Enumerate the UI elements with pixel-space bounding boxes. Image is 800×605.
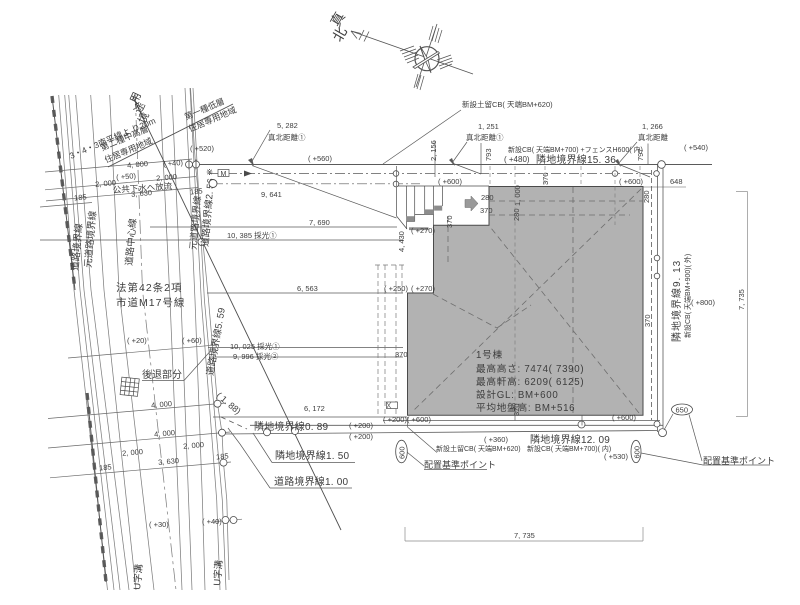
svg-text:( +40): ( +40) <box>163 158 184 169</box>
svg-text:2, 000: 2, 000 <box>122 447 144 458</box>
svg-text:隣地境界線0. 89: 隣地境界線0. 89 <box>254 420 328 433</box>
svg-text:道路境界線1. 00: 道路境界線1. 00 <box>274 475 348 488</box>
svg-text:( +560): ( +560) <box>308 154 332 163</box>
svg-text:( +480): ( +480) <box>504 155 530 164</box>
svg-text:9, 996 採光②: 9, 996 採光② <box>233 351 279 361</box>
svg-text:2, 156: 2, 156 <box>429 140 438 161</box>
svg-text:真北距離①: 真北距離① <box>268 132 306 142</box>
svg-text:280: 280 <box>512 208 521 221</box>
svg-text:( +200): ( +200) <box>349 421 373 430</box>
svg-text:法第42条2項: 法第42条2項 <box>116 281 183 294</box>
svg-text:( +600): ( +600) <box>438 177 462 186</box>
svg-text:( +250): ( +250) <box>384 284 408 293</box>
svg-text:280: 280 <box>642 190 651 203</box>
svg-text:新設土留CB( 天端BM+620): 新設土留CB( 天端BM+620) <box>436 444 521 453</box>
svg-text:平均地盤高: BM+516: 平均地盤高: BM+516 <box>476 401 575 414</box>
svg-text:後退部分: 後退部分 <box>142 368 182 381</box>
svg-text:( +270): ( +270) <box>411 226 435 235</box>
svg-text:( +200): ( +200) <box>349 432 373 441</box>
svg-text:U字溝: U字溝 <box>211 559 225 586</box>
svg-text:1号棟: 1号棟 <box>476 348 503 361</box>
svg-text:隣地境界線12. 09: 隣地境界線12. 09 <box>530 433 610 446</box>
svg-text:U字溝: U字溝 <box>131 563 145 590</box>
svg-text:185: 185 <box>74 192 87 202</box>
svg-text:1, 251: 1, 251 <box>478 122 499 131</box>
svg-text:600: 600 <box>633 446 642 459</box>
svg-text:( +520): ( +520) <box>190 144 214 153</box>
svg-text:最高高さ: 7474( 7390): 最高高さ: 7474( 7390) <box>476 362 584 375</box>
svg-text:( +600): ( +600) <box>612 413 636 422</box>
svg-text:185: 185 <box>99 462 112 472</box>
svg-text:370: 370 <box>395 350 408 359</box>
svg-text:市道M17号線: 市道M17号線 <box>116 296 185 309</box>
svg-text:7, 735: 7, 735 <box>737 289 746 310</box>
svg-text:7, 735: 7, 735 <box>514 531 535 540</box>
svg-text:隣地境界線15. 36: 隣地境界線15. 36 <box>536 153 616 166</box>
svg-text:配置基準ポイント: 配置基準ポイント <box>703 455 775 466</box>
svg-text:370: 370 <box>541 172 550 185</box>
svg-text:隣地境界線9. 13: 隣地境界線9. 13 <box>670 260 683 342</box>
svg-text:797: 797 <box>636 148 645 161</box>
svg-text:( +50): ( +50) <box>116 171 137 182</box>
svg-text:185: 185 <box>216 451 229 461</box>
svg-text:隣地境界線1. 50: 隣地境界線1. 50 <box>275 449 349 462</box>
svg-text:4, 000: 4, 000 <box>151 399 173 410</box>
svg-text:600: 600 <box>398 446 407 459</box>
svg-text:新設CB( 天端BM+900)( 外): 新設CB( 天端BM+900)( 外) <box>683 254 692 338</box>
svg-text:( +40): ( +40) <box>202 517 222 526</box>
svg-text:5, 282: 5, 282 <box>277 121 298 130</box>
svg-text:真北距離①: 真北距離① <box>466 132 504 142</box>
svg-text:新設土留CB( 天端BM+620): 新設土留CB( 天端BM+620) <box>462 99 553 109</box>
svg-text:新設CB( 天端BM+700)( 内): 新設CB( 天端BM+700)( 内) <box>527 444 611 453</box>
svg-text:真北距離: 真北距離 <box>638 132 668 142</box>
svg-text:4, 430: 4, 430 <box>397 231 406 252</box>
svg-text:6, 563: 6, 563 <box>297 284 318 293</box>
svg-text:3, 630: 3, 630 <box>158 456 180 467</box>
svg-text:370: 370 <box>480 206 493 215</box>
svg-text:7, 690: 7, 690 <box>309 218 330 227</box>
svg-text:( +20): ( +20) <box>127 336 147 345</box>
svg-text:M: M <box>221 171 227 178</box>
svg-text:280: 280 <box>481 193 494 202</box>
svg-text:( +530): ( +530) <box>604 452 628 461</box>
svg-text:648: 648 <box>670 177 683 186</box>
svg-text:( +60): ( +60) <box>182 336 202 345</box>
svg-text:最高軒高: 6209( 6125): 最高軒高: 6209( 6125) <box>476 375 584 388</box>
svg-text:650: 650 <box>676 406 689 415</box>
svg-text:9, 641: 9, 641 <box>261 190 282 199</box>
svg-text:10, 025 採光①: 10, 025 採光① <box>230 341 280 351</box>
svg-text:( +540): ( +540) <box>684 143 708 152</box>
svg-text:( +30): ( +30) <box>149 520 169 529</box>
svg-text:( +360): ( +360) <box>484 435 508 444</box>
svg-text:370: 370 <box>445 215 454 228</box>
svg-text:10, 385 採光①: 10, 385 採光① <box>227 230 277 240</box>
svg-text:185: 185 <box>190 186 203 196</box>
svg-text:※: ※ <box>206 167 213 177</box>
svg-text:( +800): ( +800) <box>691 298 715 307</box>
svg-text:4, 000: 4, 000 <box>154 428 176 439</box>
svg-text:793: 793 <box>484 148 493 161</box>
svg-text:4, 000: 4, 000 <box>127 159 149 170</box>
svg-text:設計GL: BM+600: 設計GL: BM+600 <box>476 388 558 401</box>
svg-text:( +270): ( +270) <box>411 284 435 293</box>
svg-text:1, 000: 1, 000 <box>513 185 522 206</box>
svg-text:6, 172: 6, 172 <box>304 404 325 413</box>
svg-text:370: 370 <box>643 314 652 327</box>
svg-text:新設CB( 天端BM+700) +フェンスH600( 内): 新設CB( 天端BM+700) +フェンスH600( 内) <box>508 145 643 154</box>
svg-text:2, 000: 2, 000 <box>183 440 205 451</box>
svg-text:370: 370 <box>512 403 521 416</box>
svg-text:配置基準ポイント: 配置基準ポイント <box>424 459 496 470</box>
svg-text:1, 266: 1, 266 <box>642 122 663 131</box>
